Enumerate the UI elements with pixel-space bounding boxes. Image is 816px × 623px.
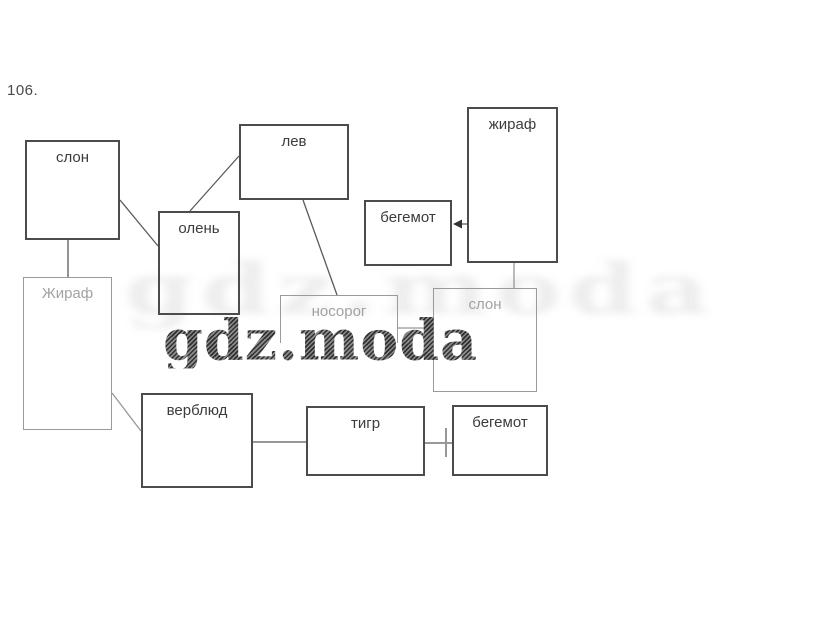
arrowhead-zhiraf1-begemot1 [453,220,462,229]
connector-lines-layer [0,0,816,623]
scanned-diagram-page: 106. gdz.moda слонлевжирафбегемотоленьЖи… [0,0,816,623]
connector-zhiraf2-verblyud [112,393,141,431]
connector-lev-nosorog [303,200,337,295]
connector-slon1-olen [120,200,158,246]
connector-olen-lev [190,156,239,211]
